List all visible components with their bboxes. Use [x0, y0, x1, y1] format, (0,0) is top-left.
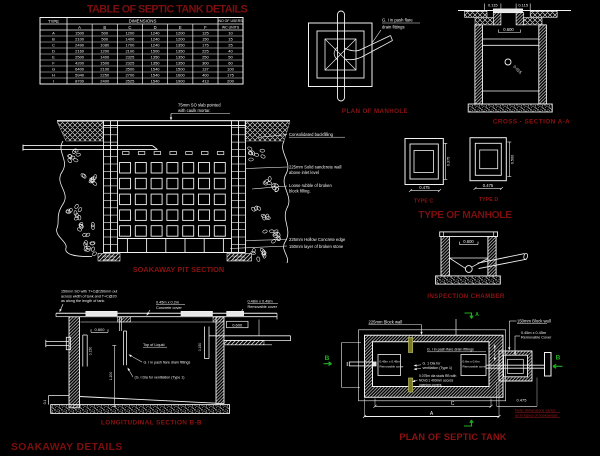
- svg-text:125: 125: [202, 31, 209, 36]
- svg-text:B: B: [103, 25, 106, 30]
- svg-text:1540: 1540: [151, 79, 161, 84]
- svg-text:(G. I Dia for ventilation (Typ: (G. I Dia for ventilation (Type 1): [135, 375, 185, 379]
- svg-text:1350: 1350: [176, 61, 186, 66]
- svg-text:D: D: [52, 49, 55, 54]
- svg-text:175: 175: [202, 43, 209, 48]
- svg-text:B: B: [325, 355, 330, 362]
- svg-text:1350: 1350: [151, 61, 161, 66]
- svg-text:1500: 1500: [75, 31, 85, 36]
- svg-text:NOx0.1 400mm access: NOx0.1 400mm access: [419, 378, 454, 382]
- svg-text:1600: 1600: [176, 73, 186, 78]
- svg-text:Removable cover: Removable cover: [380, 365, 404, 369]
- svg-text:0.115: 0.115: [518, 3, 528, 8]
- svg-text:1.200: 1.200: [109, 372, 113, 381]
- svg-text:G. I in pash flare drain fitti: G. I in pash flare drain fittings: [144, 361, 191, 365]
- svg-text:2700: 2700: [125, 73, 135, 78]
- svg-text:NO OF USERS: NO OF USERS: [218, 19, 243, 23]
- svg-text:2500: 2500: [75, 55, 85, 60]
- svg-text:drain fittings: drain fittings: [382, 25, 405, 30]
- svg-text:1500: 1500: [151, 49, 161, 54]
- svg-text:0.45m x 0.45m: 0.45m x 0.45m: [380, 360, 401, 364]
- svg-text:100: 100: [227, 67, 234, 72]
- svg-text:1080: 1080: [100, 43, 110, 48]
- svg-text:with caulk mortar.: with caulk mortar.: [178, 108, 211, 113]
- svg-text:1200: 1200: [176, 37, 186, 42]
- svg-text:2160: 2160: [75, 49, 85, 54]
- svg-text:0.075m dia studs RB with: 0.075m dia studs RB with: [419, 374, 457, 378]
- svg-text:as to types of soakaways: as to types of soakaways: [515, 413, 558, 417]
- svg-text:4200: 4200: [75, 61, 85, 66]
- svg-text:LONGITUDINAL SECTION B-B: LONGITUDINAL SECTION B-B: [101, 420, 202, 427]
- svg-text:INSPECTION CHAMBER: INSPECTION CHAMBER: [427, 293, 505, 300]
- svg-text:G. I in pash flare: G. I in pash flare: [382, 18, 413, 23]
- svg-text:B: B: [556, 355, 561, 362]
- svg-text:TYPE C: TYPE C: [414, 199, 434, 205]
- svg-text:Concrete cover: Concrete cover: [156, 306, 182, 310]
- svg-text:A: A: [475, 312, 479, 318]
- svg-text:75mm SO slab pointed: 75mm SO slab pointed: [178, 103, 221, 108]
- svg-text:25: 25: [228, 43, 233, 48]
- svg-text:0.600: 0.600: [94, 327, 105, 332]
- svg-text:225: 225: [202, 49, 209, 54]
- svg-text:1350: 1350: [176, 55, 186, 60]
- svg-text:1240: 1240: [151, 31, 161, 36]
- svg-text:200: 200: [227, 79, 234, 84]
- svg-text:1400: 1400: [100, 55, 110, 60]
- svg-text:250: 250: [202, 55, 209, 60]
- svg-text:1400: 1400: [125, 37, 135, 42]
- svg-text:300: 300: [202, 61, 209, 66]
- svg-text:60: 60: [228, 61, 233, 66]
- svg-text:C: C: [52, 43, 55, 48]
- svg-text:1500: 1500: [100, 61, 110, 66]
- svg-text:2490: 2490: [75, 43, 85, 48]
- svg-text:0.6m x 0.6m: 0.6m x 0.6m: [463, 360, 480, 364]
- svg-text:G. I in pash flare drain fitti: G. I in pash flare drain fittings: [427, 348, 474, 352]
- svg-text:across width of tank and T+C@2: across width of tank and T+C@20: [61, 294, 117, 298]
- svg-text:CROSS - SECTION A-A: CROSS - SECTION A-A: [493, 119, 570, 126]
- svg-text:SOAKAWAY PIT SECTION: SOAKAWAY PIT SECTION: [133, 265, 225, 274]
- svg-text:1350: 1350: [176, 43, 186, 48]
- svg-text:0.1: 0.1: [43, 400, 47, 405]
- svg-text:175: 175: [227, 73, 234, 78]
- svg-text:8700: 8700: [75, 79, 85, 84]
- svg-text:G. 1 Dia for: G. 1 Dia for: [423, 361, 442, 365]
- svg-text:Removable Cover: Removable Cover: [521, 336, 552, 340]
- svg-text:block filling.: block filling.: [289, 189, 311, 194]
- svg-text:as along the length of tank.: as along the length of tank.: [61, 299, 105, 303]
- svg-text:2525: 2525: [125, 79, 135, 84]
- svg-text:2100: 2100: [75, 37, 85, 42]
- svg-text:1540: 1540: [151, 73, 161, 78]
- svg-text:Removable cover: Removable cover: [248, 305, 278, 309]
- svg-text:0.48m x 0.48m: 0.48m x 0.48m: [248, 300, 273, 304]
- svg-text:0.115: 0.115: [488, 3, 498, 8]
- svg-text:0.475: 0.475: [419, 185, 430, 190]
- svg-text:1500: 1500: [176, 67, 186, 72]
- svg-text:0.600: 0.600: [503, 27, 514, 32]
- svg-text:6400: 6400: [75, 67, 85, 72]
- svg-text:40: 40: [228, 49, 233, 54]
- svg-text:1350: 1350: [176, 49, 186, 54]
- svg-text:opening covers: opening covers: [419, 383, 442, 387]
- svg-text:15: 15: [228, 37, 233, 42]
- svg-text:2100: 2100: [125, 49, 135, 54]
- svg-text:0.475: 0.475: [483, 183, 494, 188]
- svg-text:2500: 2500: [125, 67, 135, 72]
- svg-text:150mm SO with T+C@150mm out: 150mm SO with T+C@150mm out: [61, 290, 117, 294]
- svg-text:Consolidated backfilling: Consolidated backfilling: [289, 132, 334, 137]
- svg-text:PLAN OF SEPTIC TANK: PLAN OF SEPTIC TANK: [399, 432, 506, 442]
- svg-text:ventilation (Type 1): ventilation (Type 1): [423, 366, 453, 370]
- svg-text:Top of Liquid: Top of Liquid: [143, 343, 165, 347]
- svg-text:225mm Solid sandcrete wall: 225mm Solid sandcrete wall: [289, 165, 341, 170]
- svg-text:Loose rubble of broken: Loose rubble of broken: [289, 183, 333, 188]
- svg-text:225mm Block wall: 225mm Block wall: [369, 319, 403, 324]
- svg-text:GROUND: GROUND: [233, 258, 245, 262]
- svg-text:H: H: [52, 73, 55, 78]
- svg-text:PLAN OF MANHOLE: PLAN OF MANHOLE: [342, 108, 408, 115]
- svg-text:413: 413: [202, 79, 209, 84]
- svg-text:C: C: [128, 25, 131, 30]
- svg-text:1240: 1240: [151, 43, 161, 48]
- svg-text:TABLE OF SEPTIC TANK DETAILS: TABLE OF SEPTIC TANK DETAILS: [87, 4, 248, 16]
- svg-text:2250: 2250: [100, 73, 110, 78]
- svg-text:above inlet level: above inlet level: [289, 170, 319, 175]
- svg-text:0.150: 0.150: [198, 343, 202, 352]
- svg-text:G: G: [52, 67, 55, 72]
- svg-text:GROUND: GROUND: [103, 258, 115, 262]
- svg-text:I: I: [53, 79, 54, 84]
- svg-text:137: 137: [202, 67, 209, 72]
- svg-text:1700: 1700: [125, 43, 135, 48]
- svg-text:TYPE D: TYPE D: [479, 197, 499, 203]
- svg-text:DIMENSIONS: DIMENSIONS: [129, 19, 157, 24]
- svg-text:TYPE OF MANHOLE: TYPE OF MANHOLE: [418, 210, 512, 221]
- svg-text:WC UNITS: WC UNITS: [222, 26, 240, 30]
- svg-text:Removable cover: Removable cover: [463, 365, 487, 369]
- svg-text:0.150: 0.150: [89, 347, 93, 356]
- svg-text:0.600: 0.600: [463, 239, 474, 244]
- svg-text:0.45m x 0.2m: 0.45m x 0.2m: [156, 301, 179, 305]
- svg-text:2325: 2325: [125, 55, 135, 60]
- svg-text:E: E: [179, 25, 182, 30]
- svg-text:150mm Block wall: 150mm Block wall: [517, 318, 551, 323]
- svg-text:0.375: 0.375: [447, 157, 451, 167]
- svg-text:0.45m x 0.45m: 0.45m x 0.45m: [521, 331, 546, 335]
- svg-text:5940: 5940: [75, 73, 85, 78]
- svg-text:1540: 1540: [151, 67, 161, 72]
- svg-text:1200: 1200: [176, 31, 186, 36]
- svg-text:A: A: [78, 25, 81, 30]
- svg-text:B: B: [52, 37, 55, 42]
- svg-text:2325: 2325: [125, 61, 135, 66]
- svg-text:1200: 1200: [100, 49, 110, 54]
- svg-text:2100: 2100: [100, 67, 110, 72]
- svg-text:0.600: 0.600: [232, 322, 243, 327]
- svg-text:E: E: [52, 55, 55, 60]
- svg-text:D: D: [154, 25, 157, 30]
- svg-text:0.475: 0.475: [516, 398, 527, 403]
- svg-text:A: A: [52, 31, 55, 36]
- svg-text:1200: 1200: [125, 31, 135, 36]
- svg-text:C: C: [451, 401, 455, 407]
- svg-text:500: 500: [101, 37, 108, 42]
- svg-text:400: 400: [202, 73, 209, 78]
- svg-text:F: F: [204, 25, 207, 30]
- svg-text:Note: dimensions varies: Note: dimensions varies: [515, 408, 556, 412]
- svg-text:50: 50: [228, 55, 233, 60]
- svg-text:SOAKAWAY DETAILS: SOAKAWAY DETAILS: [11, 442, 123, 453]
- svg-text:1900: 1900: [176, 79, 186, 84]
- svg-text:2400: 2400: [100, 79, 110, 84]
- svg-text:10: 10: [228, 31, 233, 36]
- svg-text:0.500: 0.500: [510, 155, 514, 165]
- svg-text:225mm Hollow Concrete edge: 225mm Hollow Concrete edge: [289, 237, 346, 242]
- svg-text:TYPE: TYPE: [48, 19, 59, 24]
- svg-text:150mm layer of broken stone: 150mm layer of broken stone: [289, 244, 344, 249]
- svg-text:1350: 1350: [151, 55, 161, 60]
- svg-text:150: 150: [202, 37, 209, 42]
- svg-text:500: 500: [101, 31, 108, 36]
- svg-text:1240: 1240: [151, 37, 161, 42]
